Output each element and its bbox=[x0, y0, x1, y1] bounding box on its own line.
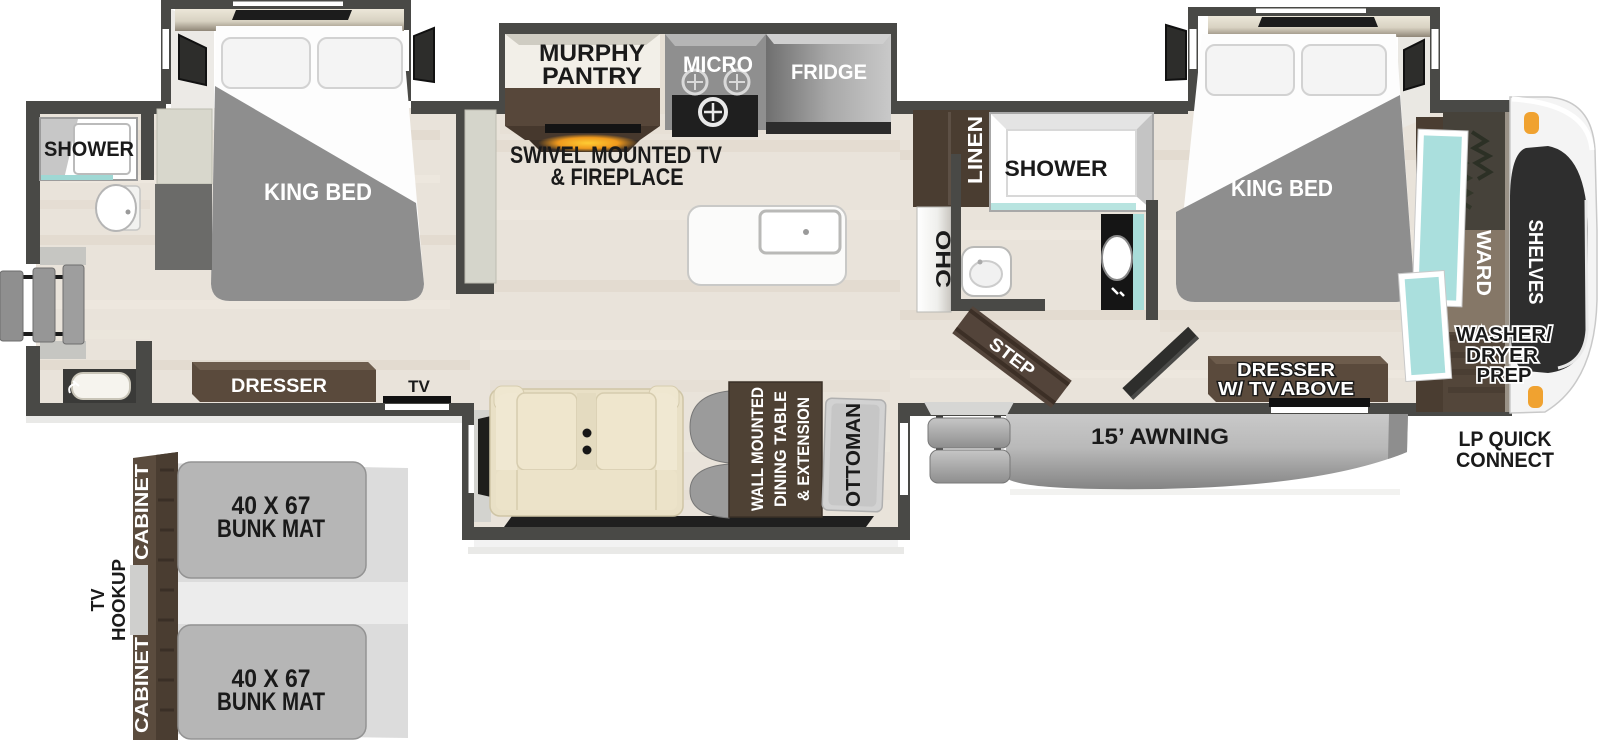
svg-text:DRYER: DRYER bbox=[1466, 345, 1539, 367]
svg-text:SHOWER: SHOWER bbox=[1005, 156, 1108, 181]
svg-text:& FIREPLACE: & FIREPLACE bbox=[551, 164, 684, 191]
svg-text:LP QUICK: LP QUICK bbox=[1459, 428, 1552, 451]
svg-text:CABINET: CABINET bbox=[132, 464, 152, 560]
svg-text:WARD: WARD bbox=[1472, 230, 1494, 296]
svg-text:KING BED: KING BED bbox=[1231, 175, 1333, 201]
svg-text:WASHER/: WASHER/ bbox=[1456, 324, 1552, 346]
svg-text:DRESSER: DRESSER bbox=[1237, 360, 1335, 380]
svg-text:MICRO: MICRO bbox=[683, 52, 753, 77]
svg-text:BUNK MAT: BUNK MAT bbox=[217, 515, 325, 543]
svg-text:PANTRY: PANTRY bbox=[542, 63, 642, 90]
svg-text:& EXTENSION: & EXTENSION bbox=[794, 397, 813, 501]
svg-text:PREP: PREP bbox=[1477, 365, 1532, 387]
svg-text:SHELVES: SHELVES bbox=[1524, 220, 1546, 305]
svg-text:CABINET: CABINET bbox=[132, 637, 152, 733]
svg-text:OHC: OHC bbox=[931, 230, 954, 288]
svg-text:DINING TABLE: DINING TABLE bbox=[771, 391, 790, 507]
svg-text:TV: TV bbox=[408, 377, 430, 396]
svg-text:SHOWER: SHOWER bbox=[44, 138, 134, 161]
svg-text:CONNECT: CONNECT bbox=[1456, 449, 1554, 472]
svg-text:HOOKUP: HOOKUP bbox=[109, 559, 129, 641]
svg-text:LINEN: LINEN bbox=[965, 116, 987, 184]
svg-text:15’ AWNING: 15’ AWNING bbox=[1091, 424, 1229, 449]
svg-text:WALL MOUNTED: WALL MOUNTED bbox=[748, 387, 767, 511]
svg-text:BUNK MAT: BUNK MAT bbox=[217, 688, 325, 716]
svg-text:DRESSER: DRESSER bbox=[231, 376, 327, 397]
svg-text:FRIDGE: FRIDGE bbox=[791, 61, 867, 84]
svg-text:KING BED: KING BED bbox=[264, 179, 372, 206]
svg-text:TV: TV bbox=[88, 588, 108, 611]
svg-text:W/ TV ABOVE: W/ TV ABOVE bbox=[1218, 379, 1354, 399]
svg-text:OTTOMAN: OTTOMAN bbox=[843, 403, 865, 507]
